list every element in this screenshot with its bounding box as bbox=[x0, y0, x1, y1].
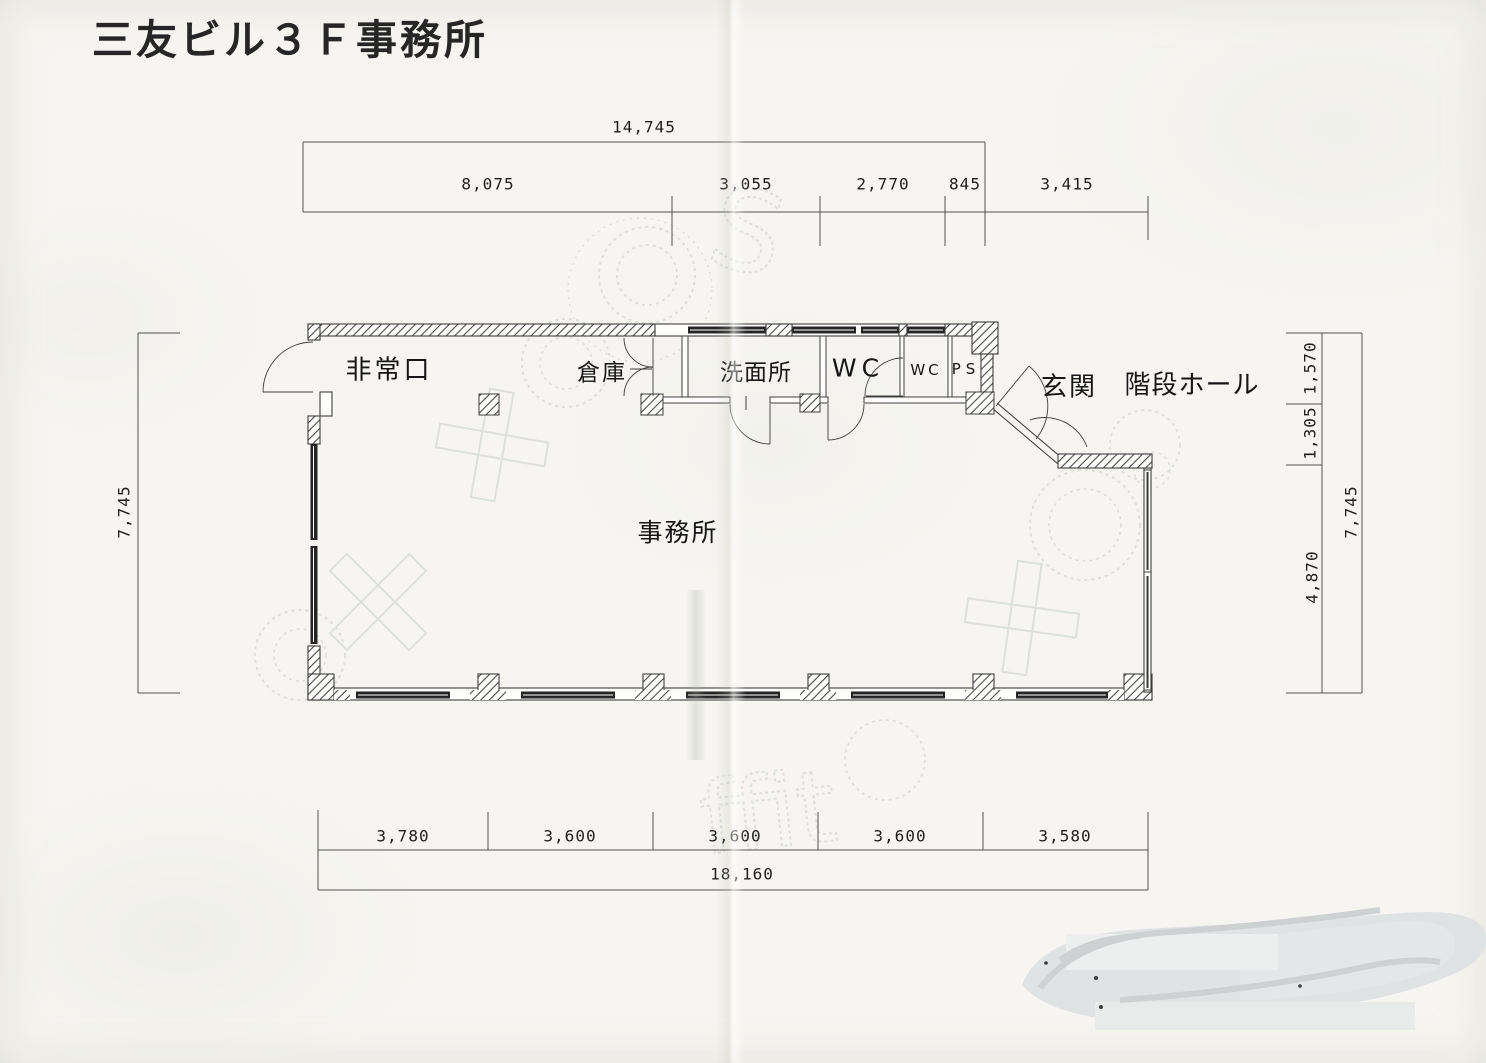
scan-smudge bbox=[1022, 910, 1486, 1030]
dim-top-seg-3: 845 bbox=[949, 175, 981, 194]
entrance-door-2 bbox=[1030, 418, 1087, 447]
wc-office-door bbox=[828, 404, 864, 440]
room-label-emergency-exit: 非常口 bbox=[345, 350, 432, 387]
dim-bottom-seg-0: 3,780 bbox=[376, 827, 429, 846]
storage-door bbox=[624, 338, 653, 396]
room-label-washroom: 洗面所 bbox=[720, 353, 792, 387]
dim-top-seg-1: 3,055 bbox=[719, 175, 772, 194]
dim-right-total: 7,745 bbox=[1342, 485, 1361, 538]
watermark-letter-ffit: ffit bbox=[694, 748, 841, 879]
dim-top-total: 14,745 bbox=[612, 118, 676, 137]
room-label-pipe-shaft: PS bbox=[952, 360, 981, 378]
emergency-exit-door bbox=[263, 342, 313, 392]
room-label-storage: 倉庫 bbox=[577, 353, 627, 387]
dim-right-seg-2: 4,870 bbox=[1303, 550, 1322, 603]
dim-top-seg-2: 2,770 bbox=[856, 175, 909, 194]
paper-crease-shadow bbox=[686, 590, 706, 760]
dim-top-seg-4: 3,415 bbox=[1040, 175, 1093, 194]
dim-bottom-seg-3: 3,600 bbox=[873, 827, 926, 846]
dim-bottom-seg-4: 3,580 bbox=[1038, 827, 1091, 846]
room-label-wc: WC bbox=[832, 354, 884, 383]
dim-left-total: 7,745 bbox=[115, 485, 134, 538]
room-label-stair-hall: 階段ホール bbox=[1124, 365, 1259, 402]
dim-bottom-total: 18,160 bbox=[710, 865, 774, 884]
scanned-floor-plan-page: S ffit bbox=[0, 0, 1486, 1063]
room-label-wc-small: WC bbox=[910, 361, 941, 379]
washroom-door bbox=[730, 404, 770, 444]
dim-right-seg-1: 1,305 bbox=[1301, 406, 1320, 459]
floor-plan-drawing: S ffit bbox=[0, 0, 1486, 1063]
page-title: 三友ビル３Ｆ事務所 bbox=[92, 6, 488, 66]
room-label-office: 事務所 bbox=[637, 513, 718, 549]
dim-bottom-seg-1: 3,600 bbox=[543, 827, 596, 846]
dim-top-seg-0: 8,075 bbox=[461, 175, 514, 194]
dim-right-seg-0: 1,570 bbox=[1301, 341, 1320, 394]
dim-bottom-seg-2: 3,600 bbox=[708, 827, 761, 846]
room-label-entrance: 玄関 bbox=[1041, 367, 1097, 404]
